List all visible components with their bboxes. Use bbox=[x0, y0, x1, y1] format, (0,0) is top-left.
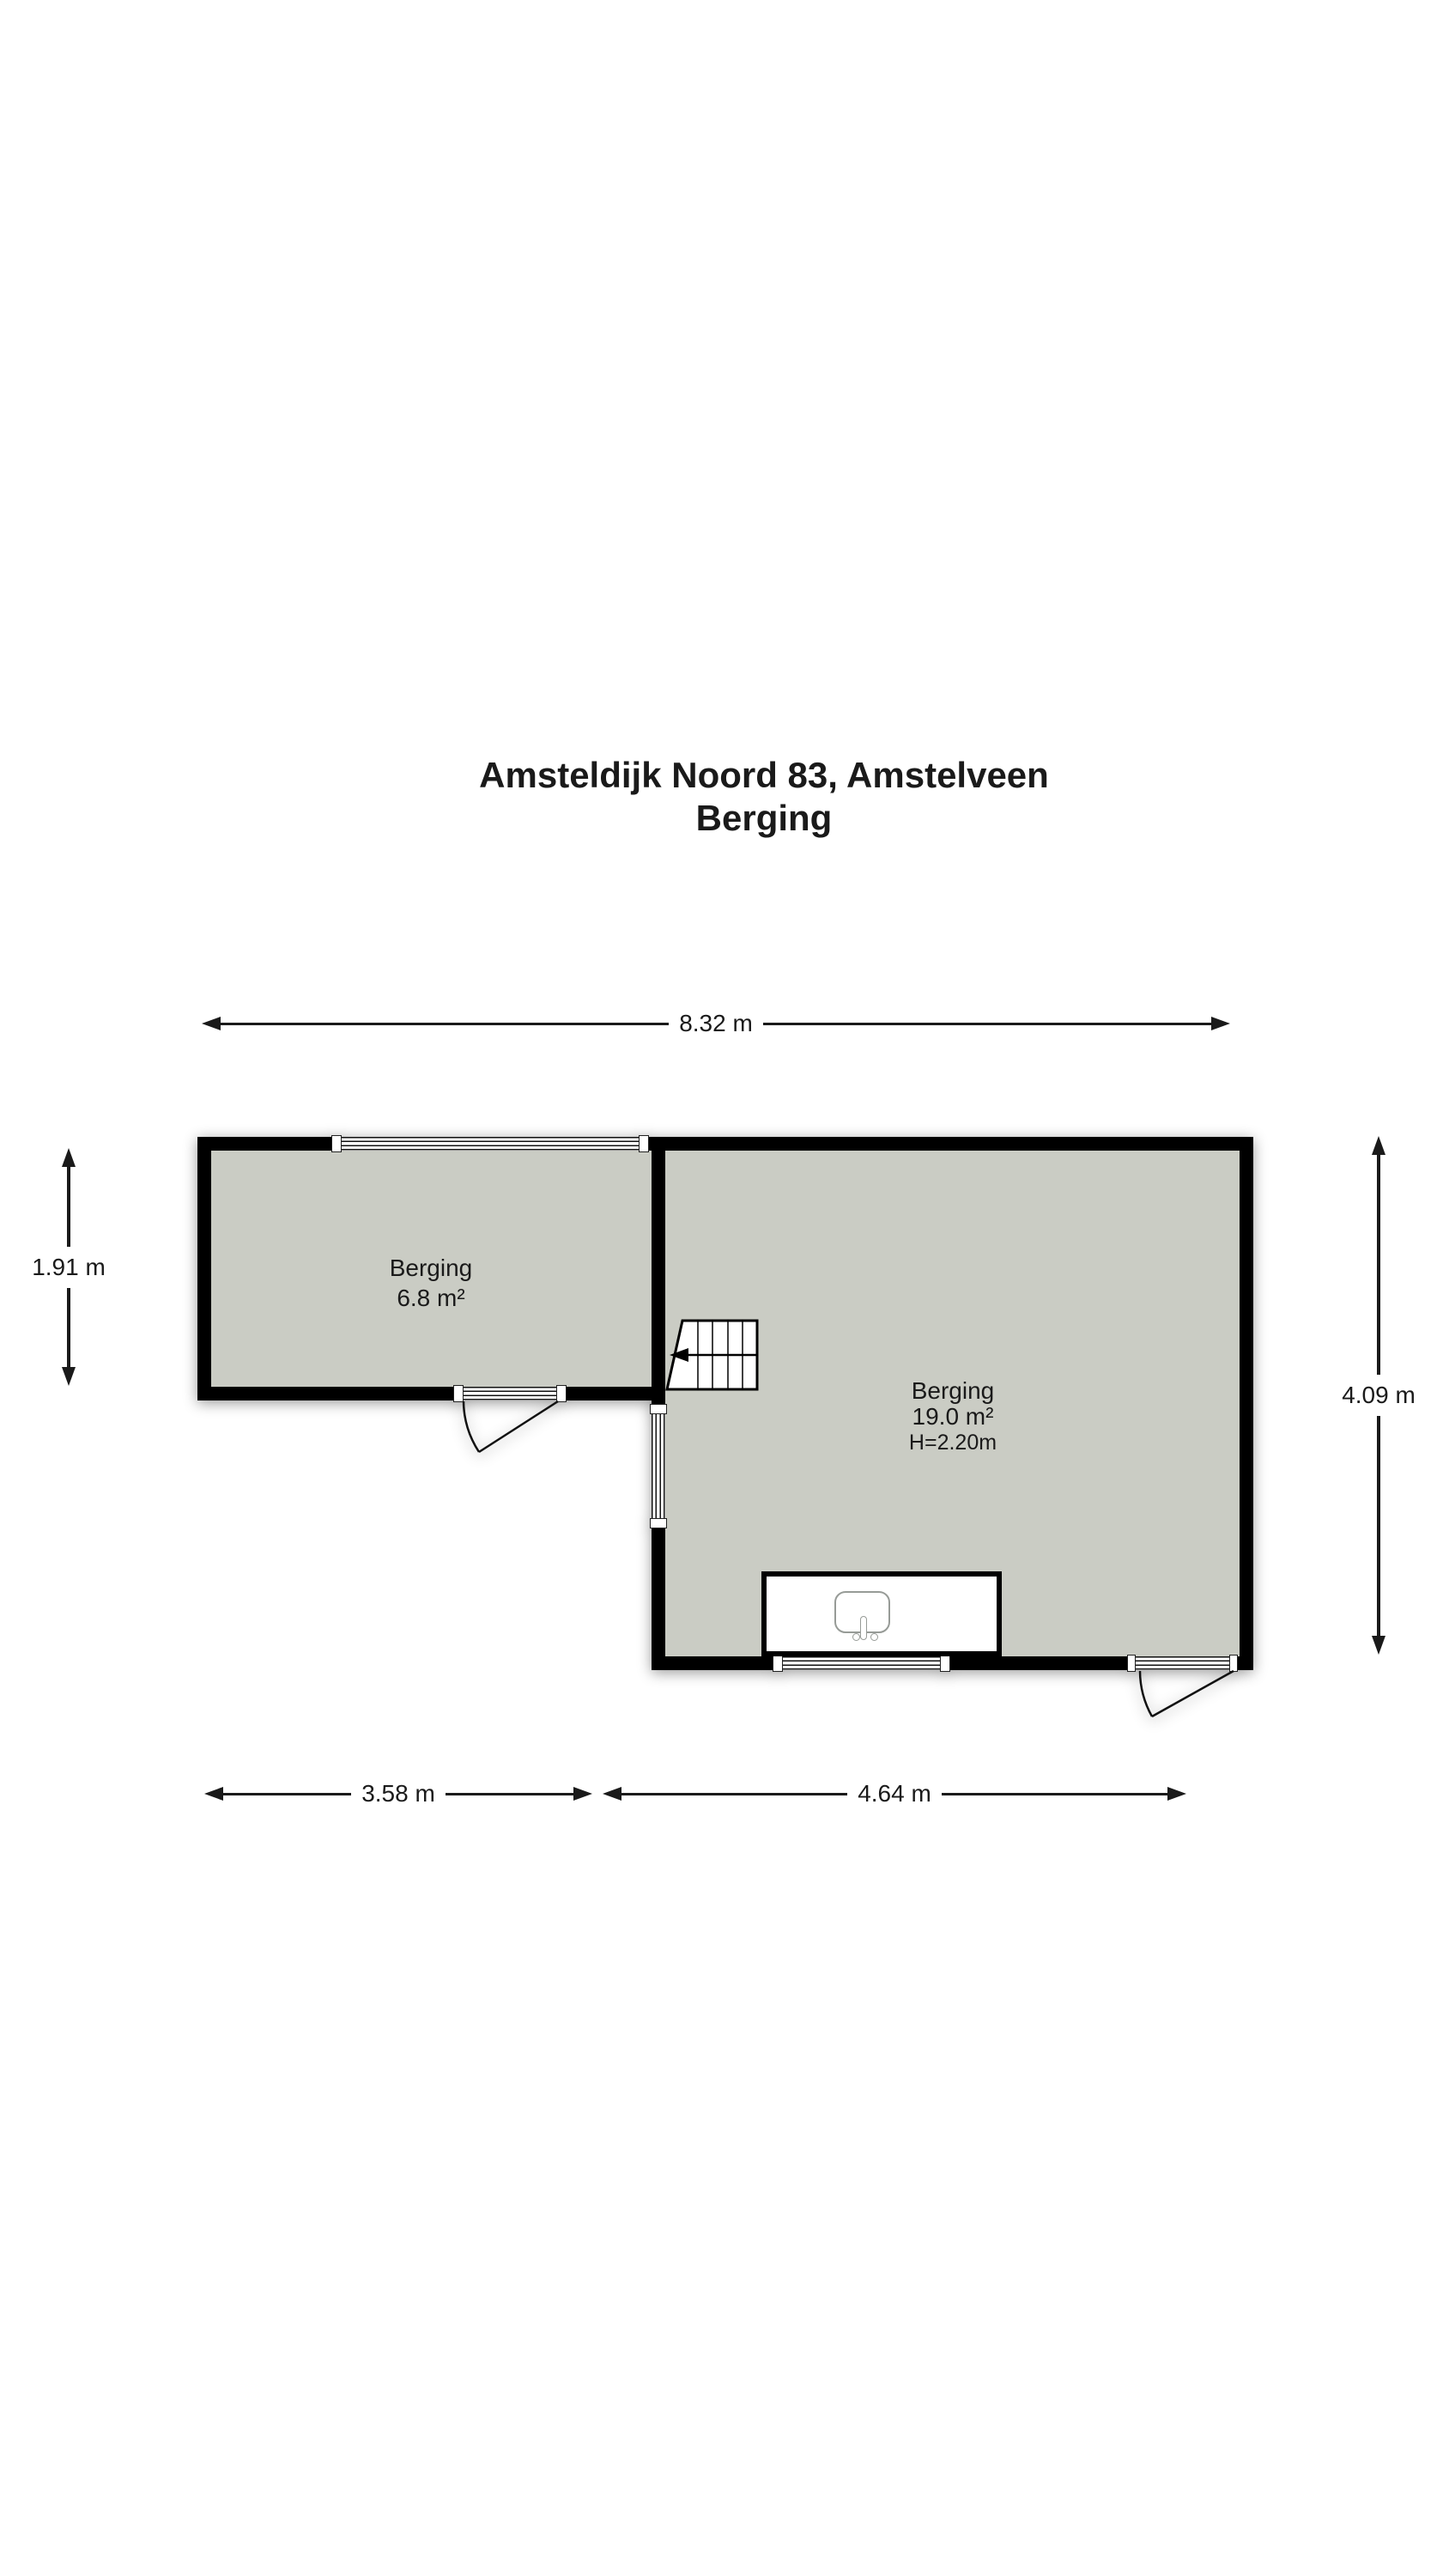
sink-counter bbox=[761, 1571, 1002, 1656]
wall-right bbox=[1240, 1137, 1253, 1670]
sink-knob-right-icon bbox=[870, 1633, 878, 1641]
wall-large-room-bottom-corner bbox=[1238, 1656, 1253, 1670]
stairs-icon bbox=[661, 1314, 764, 1395]
door-threshold-cap-right bbox=[556, 1385, 567, 1402]
window-side bbox=[652, 1414, 665, 1518]
window-side-cap-bottom bbox=[650, 1518, 667, 1528]
room-name: Berging bbox=[824, 1378, 1082, 1404]
door-threshold-small-room bbox=[464, 1387, 556, 1400]
wall-large-room-bottom-a bbox=[652, 1656, 773, 1670]
door-swing-large-room-icon bbox=[1116, 1670, 1245, 1726]
wall-top-right-segment bbox=[649, 1137, 1253, 1151]
room-ceiling-height: H=2.20m bbox=[824, 1430, 1082, 1455]
door-threshold-cap-right bbox=[1229, 1655, 1238, 1672]
wall-large-room-bottom-b bbox=[950, 1656, 1127, 1670]
wall-large-room-left-lower bbox=[652, 1528, 665, 1670]
wall-small-room-bottom-right bbox=[567, 1387, 665, 1400]
room-label-small-berging: Berging 6.8 m² bbox=[302, 1253, 560, 1313]
window-side-cap-top bbox=[650, 1404, 667, 1414]
window-top-cap-left bbox=[331, 1135, 342, 1152]
window-bottom-cap-left bbox=[773, 1655, 783, 1672]
door-threshold-cap-left bbox=[453, 1385, 464, 1402]
door-threshold-cap-left bbox=[1127, 1655, 1136, 1672]
sink-knob-left-icon bbox=[852, 1633, 860, 1641]
floor-plan bbox=[0, 0, 1449, 2576]
room-area: 6.8 m² bbox=[302, 1283, 560, 1313]
window-top-cap-right bbox=[639, 1135, 649, 1152]
floorplan-page: Amsteldijk Noord 83, Amstelveen Berging … bbox=[0, 0, 1449, 2576]
door-swing-small-room-icon bbox=[446, 1400, 575, 1478]
room-area: 19.0 m² bbox=[824, 1404, 1082, 1430]
window-bottom-cap-right bbox=[940, 1655, 950, 1672]
sink-tap-icon bbox=[860, 1616, 867, 1640]
wall-left bbox=[197, 1137, 211, 1400]
window-top bbox=[342, 1137, 639, 1151]
room-label-large-berging: Berging 19.0 m² H=2.20m bbox=[824, 1378, 1082, 1455]
window-bottom bbox=[783, 1656, 940, 1670]
door-threshold-large-room bbox=[1136, 1656, 1229, 1670]
wall-top-left-segment bbox=[197, 1137, 331, 1151]
wall-small-room-bottom-left bbox=[197, 1387, 453, 1400]
room-name: Berging bbox=[302, 1253, 560, 1283]
